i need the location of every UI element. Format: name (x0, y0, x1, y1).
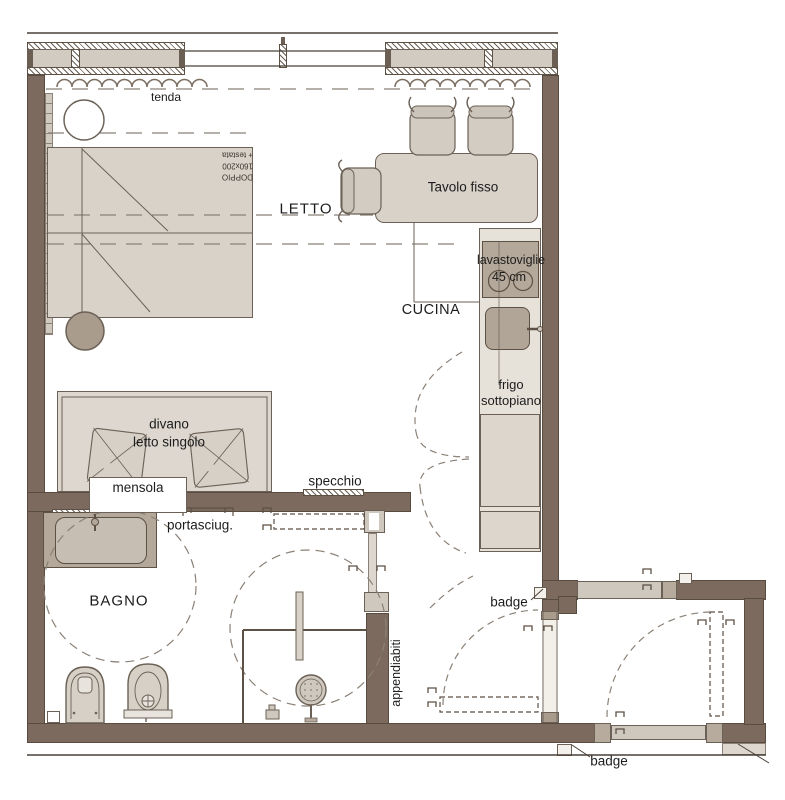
bedside-stool-bottom (66, 312, 104, 350)
sofa-label: divano letto singolo (133, 415, 205, 450)
floor-plan: tenda DOPPIO 160x200 + testata LETTO Tav… (0, 0, 785, 800)
bed-size-line1: DOPPIO (206, 171, 253, 182)
chair-top-1 (409, 97, 456, 155)
sofa-label-line1: divano (133, 415, 205, 433)
door-swing-arcs (443, 610, 712, 717)
towel-holder-label: portasciug. (167, 518, 233, 533)
chair-top-2 (467, 97, 514, 155)
shower-mixer (266, 705, 279, 719)
badge-label-bottom: badge (590, 754, 628, 769)
sofa-label-line2: letto singolo (133, 433, 205, 451)
table-label: Tavolo fisso (428, 180, 499, 195)
fridge-label-line1: frigo (481, 377, 541, 393)
vanity-faucet (92, 514, 99, 531)
badge-label-top: badge (490, 595, 528, 610)
dishwasher-size-label: 45 cm (492, 270, 526, 284)
towel-rail (183, 508, 233, 516)
chair-left (339, 160, 381, 222)
room-label-bathroom: BAGNO (89, 593, 148, 610)
badge-leader-lines (531, 589, 769, 763)
coat-rack-label: appendiabiti (389, 628, 404, 718)
sink-faucet (527, 327, 543, 332)
doorway-frame-lines (543, 611, 557, 722)
mirror-label: specchio (308, 474, 361, 489)
kitchen-door-arcs (415, 352, 473, 608)
shelf-box: mensola (89, 477, 187, 513)
bed-size-line3: + testata (206, 149, 253, 160)
open-door-leaves (274, 514, 723, 716)
shelf-label: mensola (112, 480, 163, 495)
fridge-label-line2: sottopiano (481, 393, 541, 409)
toilet (66, 667, 104, 723)
bed-size-line2: 160x200 (206, 160, 253, 171)
guide-dashes (46, 89, 540, 244)
shower-glass-panel (296, 592, 303, 660)
curtain-label: tenda (151, 90, 181, 104)
hardware-brackets (263, 508, 734, 734)
curtain-wave (57, 80, 530, 88)
bed-size-label: DOPPIO 160x200 + testata (206, 149, 253, 183)
shower-head (296, 675, 326, 722)
bedside-stool-top (64, 100, 104, 140)
window-glazing-lines (185, 51, 385, 66)
dishwasher-label: lavastoviglie (477, 253, 545, 267)
room-label-bedroom: LETTO (279, 201, 332, 218)
room-label-kitchen: CUCINA (402, 302, 461, 318)
bidet (124, 664, 172, 722)
fridge-label: frigo sottopiano (481, 377, 541, 410)
